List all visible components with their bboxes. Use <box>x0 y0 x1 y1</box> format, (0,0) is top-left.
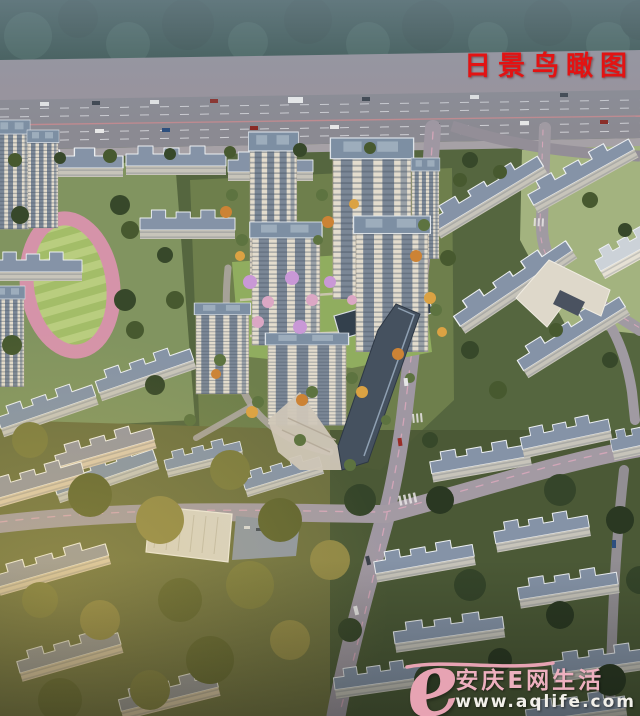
birdseye-rendering: 日景鸟瞰图 e 安庆E网生活 www.aqlife.com <box>0 0 640 716</box>
site-name: 安庆E网生活 <box>455 669 604 693</box>
rendering-title: 日景鸟瞰图 <box>464 44 634 83</box>
logo-swoosh-icon <box>405 658 555 670</box>
rendering-scene <box>0 0 640 716</box>
site-watermark: e 安庆E网生活 www.aqlife.com <box>405 660 636 712</box>
site-url: www.aqlife.com <box>455 693 636 712</box>
